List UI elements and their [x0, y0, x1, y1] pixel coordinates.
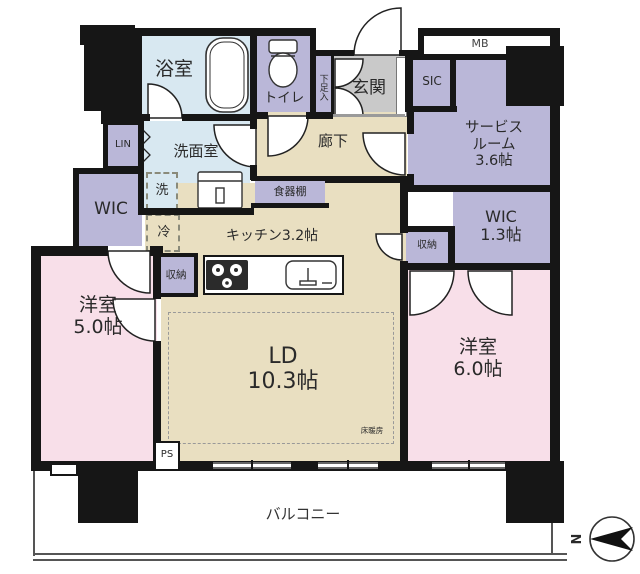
label-bathroom: 浴室 — [142, 56, 206, 84]
label-kitchen: キッチン3.2帖 — [221, 226, 323, 246]
label-fridge: 冷 — [150, 221, 178, 245]
label-cupboard: 食器棚 — [261, 184, 319, 200]
wall — [80, 25, 135, 45]
wall — [73, 168, 143, 174]
floor-plan: 浴室 トイレ 下足入 玄関 MB SIC サービスルーム3.6帖 WIC1.3帖… — [0, 0, 640, 574]
label-wic-right: WIC1.3帖 — [455, 200, 547, 252]
wall — [133, 28, 315, 36]
label-sic: SIC — [415, 73, 449, 91]
label-hallway: 廊下 — [306, 131, 360, 153]
wall — [400, 263, 552, 270]
wall — [155, 293, 198, 297]
window-mullion — [251, 460, 253, 471]
label-balcony: バルコニー — [248, 503, 358, 527]
entrance-step-line — [333, 114, 405, 117]
wall — [448, 226, 455, 270]
label-shoe-box: 下足入 — [314, 62, 331, 112]
label-pipe-space: PS — [156, 446, 178, 464]
label-bedroom-right: 洋室6.0帖 — [436, 330, 520, 388]
small-window — [50, 463, 78, 476]
label-living-dining: LD10.3帖 — [228, 338, 338, 400]
wall — [325, 176, 411, 183]
kitchen-counter — [203, 255, 344, 295]
label-washer: 洗 — [150, 180, 174, 202]
wall — [73, 168, 79, 252]
wall — [331, 56, 334, 114]
wall — [155, 253, 198, 257]
label-service-room: サービスルーム3.6帖 — [448, 116, 540, 174]
window-mullion — [347, 460, 349, 471]
wall — [84, 43, 135, 111]
wall — [31, 246, 108, 256]
wall — [405, 50, 413, 112]
label-floor-heating: 床暖房 — [352, 425, 392, 437]
wall — [450, 56, 456, 110]
wall — [250, 28, 257, 118]
wall — [182, 114, 254, 121]
label-washroom: 洗面室 — [156, 141, 236, 163]
wall — [194, 253, 198, 297]
balcony-edge-left — [33, 468, 35, 556]
wall — [103, 120, 108, 170]
wall — [31, 246, 41, 468]
balcony-edge-bottom — [33, 553, 567, 561]
wall — [251, 176, 329, 181]
wall — [407, 174, 414, 185]
wall — [103, 120, 141, 125]
wall — [400, 261, 408, 463]
wall — [418, 34, 424, 58]
label-meter-box: MB — [462, 36, 498, 52]
wall — [408, 185, 552, 192]
wall — [407, 110, 414, 134]
front-door-arc — [354, 8, 401, 55]
label-storage-left: 収納 — [158, 266, 194, 284]
label-bedroom-left: 洋室5.0帖 — [56, 288, 140, 346]
wall — [135, 28, 142, 120]
label-storage-right: 収納 — [406, 238, 448, 254]
wall — [250, 165, 257, 180]
wall — [251, 203, 329, 208]
window-mullion — [468, 460, 470, 471]
label-north: N — [568, 530, 588, 548]
wall — [400, 183, 408, 233]
balcony-edge-right — [551, 523, 553, 555]
label-entrance: 玄関 — [337, 76, 401, 102]
wall — [506, 46, 564, 106]
label-linen: LIN — [109, 136, 137, 154]
pillar — [506, 461, 564, 523]
wall — [418, 28, 560, 36]
wall — [138, 208, 254, 215]
label-wic-left: WIC — [82, 197, 140, 223]
wall — [250, 112, 257, 129]
label-toilet: トイレ — [258, 90, 310, 108]
compass-icon — [590, 517, 634, 561]
pillar — [78, 461, 138, 523]
